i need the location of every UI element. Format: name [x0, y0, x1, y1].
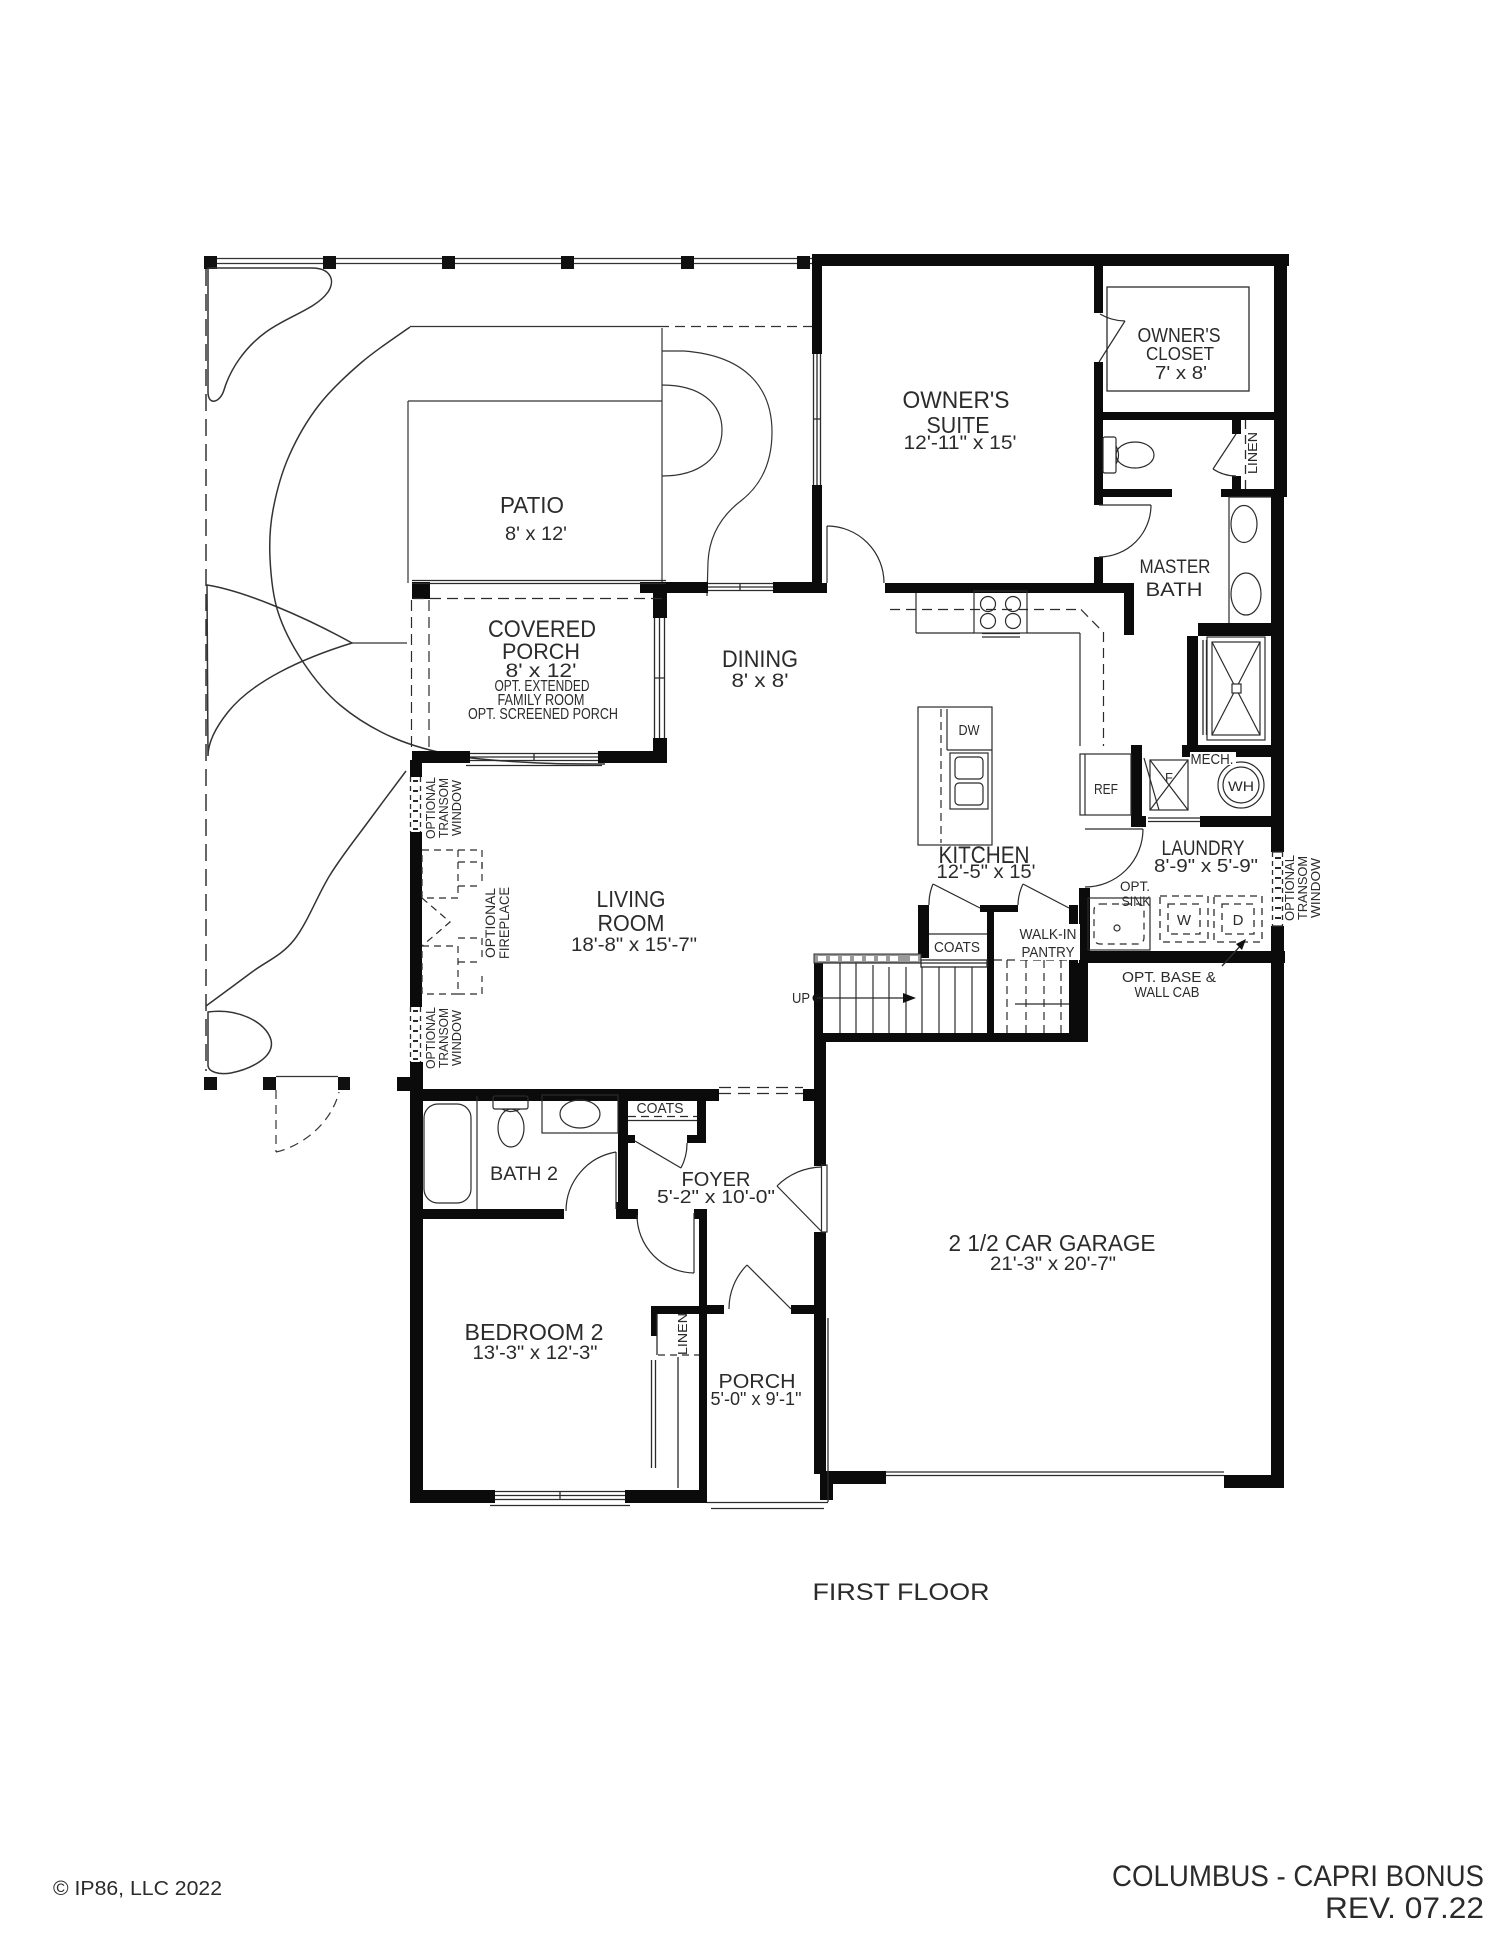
svg-text:PATIO: PATIO — [500, 492, 564, 518]
svg-text:21'-3" x 20'-7": 21'-3" x 20'-7" — [990, 1254, 1116, 1275]
svg-text:5'-0" x 9'-1": 5'-0" x 9'-1" — [711, 1389, 802, 1409]
svg-text:BATH 2: BATH 2 — [490, 1164, 558, 1185]
svg-text:REV. 07.22: REV. 07.22 — [1325, 1892, 1484, 1925]
svg-text:WINDOW: WINDOW — [449, 779, 464, 836]
svg-text:DINING: DINING — [722, 646, 798, 673]
svg-text:13'-3" x 12'-3": 13'-3" x 12'-3" — [473, 1343, 598, 1364]
svg-text:8' x 12': 8' x 12' — [505, 524, 567, 545]
svg-text:2 1/2 CAR GARAGE: 2 1/2 CAR GARAGE — [949, 1230, 1156, 1256]
svg-text:WINDOW: WINDOW — [1308, 857, 1323, 918]
svg-text:12'-5" x 15': 12'-5" x 15' — [937, 862, 1036, 883]
svg-text:© IP86, LLC 2022: © IP86, LLC 2022 — [53, 1878, 222, 1900]
svg-text:COATS: COATS — [934, 939, 980, 956]
svg-text:FIRST FLOOR: FIRST FLOOR — [813, 1579, 990, 1606]
svg-text:COLUMBUS - CAPRI BONUS: COLUMBUS - CAPRI BONUS — [1112, 1860, 1484, 1893]
svg-text:OPT.: OPT. — [1120, 878, 1150, 894]
svg-text:OPTIONAL: OPTIONAL — [483, 887, 498, 958]
svg-text:MASTER: MASTER — [1140, 557, 1211, 578]
svg-text:WH: WH — [1228, 778, 1254, 794]
svg-text:18'-8" x 15'-7": 18'-8" x 15'-7" — [571, 935, 697, 956]
svg-text:8'-9" x 5'-9": 8'-9" x 5'-9" — [1154, 856, 1258, 876]
svg-text:LINEN: LINEN — [675, 1313, 690, 1355]
svg-text:BATH: BATH — [1146, 580, 1203, 601]
svg-text:MECH.: MECH. — [1191, 751, 1234, 768]
svg-text:DW: DW — [959, 722, 981, 739]
svg-text:BEDROOM 2: BEDROOM 2 — [465, 1319, 604, 1345]
svg-text:WALL CAB: WALL CAB — [1135, 984, 1200, 1001]
svg-text:12'-11" x 15': 12'-11" x 15' — [904, 433, 1017, 454]
svg-text:LINEN: LINEN — [1245, 432, 1260, 474]
svg-text:CLOSET: CLOSET — [1146, 344, 1214, 364]
svg-text:5'-2" x 10'-0": 5'-2" x 10'-0" — [657, 1187, 775, 1207]
svg-text:FIREPLACE: FIREPLACE — [497, 887, 512, 959]
svg-text:D: D — [1233, 912, 1244, 929]
svg-text:WALK-IN: WALK-IN — [1020, 926, 1077, 943]
svg-text:OWNER'S: OWNER'S — [903, 387, 1010, 414]
svg-text:7' x 8': 7' x 8' — [1155, 363, 1207, 383]
svg-text:WINDOW: WINDOW — [449, 1009, 464, 1066]
svg-text:SINK: SINK — [1122, 893, 1152, 909]
svg-text:F: F — [1165, 770, 1173, 785]
svg-text:UP: UP — [792, 990, 810, 1007]
svg-text:OPT. SCREENED PORCH: OPT. SCREENED PORCH — [468, 706, 618, 723]
svg-text:8' x 8': 8' x 8' — [732, 671, 789, 692]
svg-text:W: W — [1177, 912, 1192, 929]
svg-text:COATS: COATS — [637, 1100, 684, 1117]
svg-text:PANTRY: PANTRY — [1022, 944, 1075, 961]
svg-text:ROOM: ROOM — [598, 910, 665, 936]
svg-text:REF: REF — [1094, 781, 1118, 798]
svg-text:LIVING: LIVING — [597, 886, 666, 912]
